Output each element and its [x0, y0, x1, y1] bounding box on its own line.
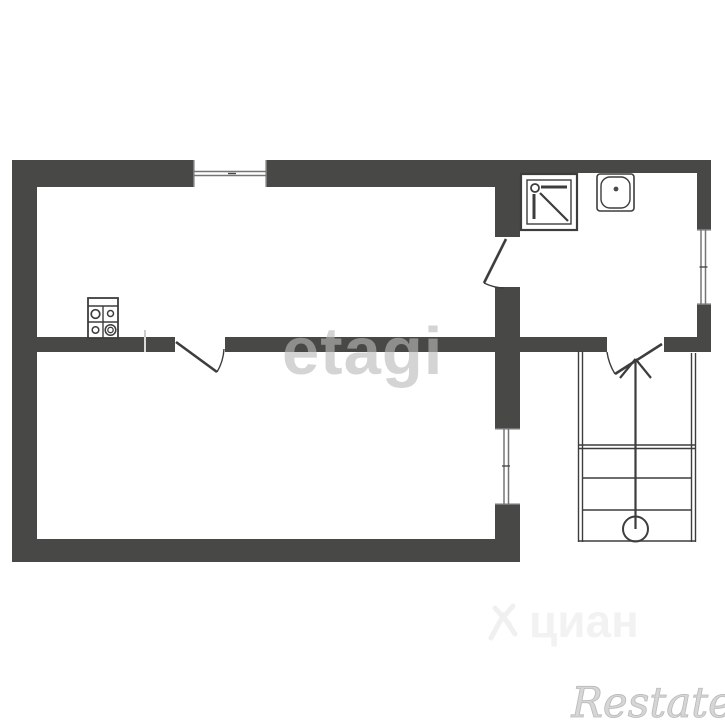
sink-icon	[597, 174, 634, 211]
staircase-steps	[579, 445, 696, 510]
window-lower-right	[495, 428, 520, 505]
door-bathroom-arc	[484, 283, 504, 288]
wall-middle-bathroom-b	[664, 337, 711, 352]
staircase	[579, 351, 696, 542]
stove-icon	[88, 298, 118, 338]
wall-top-bathroom	[520, 160, 711, 173]
watermark-cian: циан	[487, 598, 639, 644]
door-staircase-arc	[607, 352, 615, 374]
window-right	[696, 229, 712, 305]
wall-bottom	[12, 539, 520, 562]
cian-logo-icon	[487, 600, 521, 642]
watermark-etagi: etagi	[282, 318, 443, 385]
wall-middle-a	[37, 337, 175, 352]
door-staircase-leaf	[615, 344, 662, 374]
floor-plan-canvas: etagi циан Restate	[0, 0, 725, 725]
door-bathroom-leaf	[484, 239, 506, 283]
door-lower-room-leaf	[176, 342, 217, 372]
wall-interior-vertical-b	[495, 287, 520, 428]
wall-left	[12, 160, 37, 562]
shower-icon	[521, 174, 577, 230]
wall-top-right-of-window	[267, 160, 520, 187]
wall-top-left-of-window	[12, 160, 193, 187]
window-top	[193, 160, 267, 187]
watermark-restate: Restate	[571, 682, 725, 724]
door-lower-room	[176, 342, 224, 372]
wall-interior-vertical-a	[495, 173, 520, 237]
wall-right-upper	[697, 160, 711, 229]
door-bathroom	[484, 239, 506, 288]
staircase-up-arrow	[620, 359, 651, 529]
staircase-stringers	[579, 351, 696, 542]
watermark-cian-label: циан	[529, 598, 639, 644]
door-lower-room-arc	[217, 349, 224, 372]
wall-middle-bathroom-a	[520, 337, 607, 352]
